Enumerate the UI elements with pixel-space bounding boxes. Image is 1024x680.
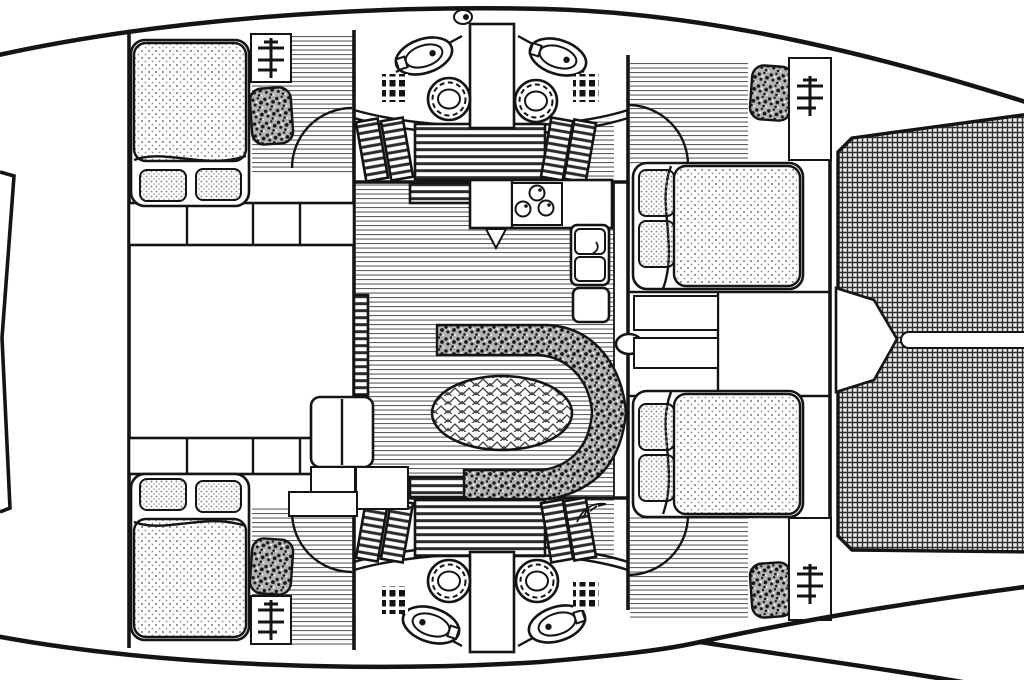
hanging-locker bbox=[749, 65, 794, 122]
floor-starboard-forward-cabin bbox=[630, 514, 748, 618]
stairs-small-upper bbox=[410, 183, 472, 203]
galley-locker bbox=[573, 288, 609, 322]
trampoline-seam bbox=[901, 332, 1024, 348]
pillow bbox=[140, 170, 186, 201]
companionway-column-lower bbox=[470, 552, 514, 652]
nav-seat bbox=[311, 467, 355, 493]
pillow bbox=[196, 481, 241, 512]
shelf-band-upper bbox=[129, 203, 354, 245]
hull-flare-corner bbox=[700, 642, 1024, 680]
nav-bench bbox=[289, 492, 357, 516]
deck-details bbox=[454, 10, 472, 24]
deck-plan bbox=[0, 0, 1024, 680]
toilet-icon bbox=[428, 560, 470, 602]
trampoline-group bbox=[836, 114, 1024, 552]
sink-bowl-1 bbox=[575, 229, 605, 254]
floor-port-forward-cabin bbox=[630, 62, 748, 166]
stairs-wide-lower bbox=[415, 500, 545, 556]
berth-mattress bbox=[134, 43, 246, 161]
toilet-icon bbox=[428, 78, 470, 120]
head-port-mirror bbox=[382, 560, 470, 650]
stairs-small-lower bbox=[410, 477, 472, 497]
dining-table bbox=[432, 376, 572, 450]
hanging-locker bbox=[249, 538, 294, 596]
pillow bbox=[639, 170, 674, 216]
cabin-port-aft bbox=[131, 34, 294, 206]
vent-grate-icon bbox=[382, 74, 408, 102]
pillow bbox=[140, 479, 186, 510]
cabin-starboard-aft bbox=[131, 474, 294, 644]
companionway-column-upper bbox=[470, 24, 514, 128]
forward-lockers bbox=[634, 296, 718, 368]
pillow bbox=[196, 169, 241, 200]
head-starboard-mirror bbox=[516, 560, 599, 649]
bow-tip bbox=[0, 172, 14, 512]
hanging-locker bbox=[249, 87, 294, 146]
locker-box-lower bbox=[634, 338, 718, 368]
berth-mattress bbox=[674, 166, 800, 286]
head-starboard-aft bbox=[515, 32, 599, 122]
locker-louver-panel bbox=[354, 295, 368, 395]
toilet-icon bbox=[515, 80, 557, 122]
basin-icon bbox=[391, 31, 457, 81]
hanging-locker bbox=[749, 562, 794, 619]
berth-mattress bbox=[134, 519, 246, 637]
vent-grate-icon bbox=[382, 586, 408, 614]
pillow bbox=[639, 455, 674, 501]
locker-box-upper bbox=[634, 296, 718, 330]
vent-grate-icon bbox=[573, 582, 599, 610]
nav-cabinet bbox=[356, 467, 408, 509]
sink-bowl-2 bbox=[575, 257, 605, 281]
toilet-icon bbox=[516, 560, 558, 602]
deck-cleat-dot bbox=[463, 14, 469, 20]
pillow bbox=[639, 221, 674, 267]
head-port-aft bbox=[382, 31, 470, 120]
pillow bbox=[639, 404, 674, 450]
deck-plan-page: Sailing yacht interior deck plan — overh… bbox=[0, 0, 1024, 680]
berth-mattress bbox=[674, 394, 800, 514]
stairs-wide-upper bbox=[415, 124, 545, 180]
vent-grate-icon bbox=[573, 74, 599, 102]
